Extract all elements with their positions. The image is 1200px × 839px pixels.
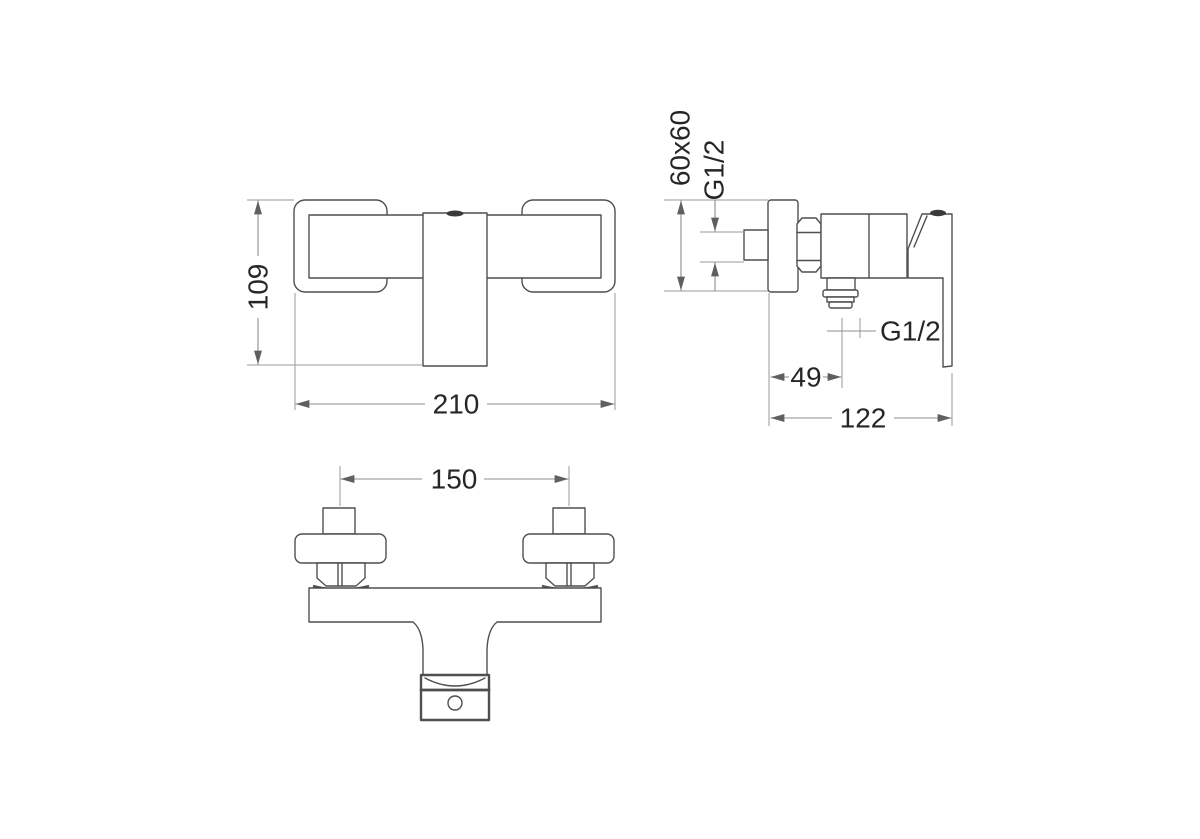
side-hex-nut — [797, 218, 821, 272]
side-wall-plate — [768, 200, 798, 292]
dim-hole-spacing: 150 — [340, 464, 569, 507]
dim-text-122: 122 — [840, 403, 887, 434]
bottom-view — [295, 508, 614, 720]
dim-inlet-thread: G1/2 — [699, 140, 745, 291]
dim-text-109: 109 — [243, 264, 274, 311]
bottom-hex-nut-left — [317, 563, 365, 586]
bottom-inlet-square-left — [323, 508, 355, 534]
bottom-spout-box — [421, 675, 489, 720]
side-inlet-pipe — [744, 230, 768, 260]
bottom-inlet-square-right — [553, 508, 585, 534]
side-lever-screw — [930, 210, 946, 216]
side-body — [821, 214, 907, 278]
side-outlet-thread-top — [827, 297, 854, 302]
bottom-escutcheon-right — [523, 534, 614, 563]
dim-text-60x60: 60x60 — [665, 110, 696, 186]
front-view — [294, 200, 615, 366]
technical-drawing: 109 210 60x60 G1/2 G1/2 — [0, 0, 1200, 839]
technical-drawing-page: 109 210 60x60 G1/2 G1/2 — [0, 0, 1200, 839]
dim-outlet-thread: G1/2 — [827, 316, 941, 389]
dim-text-150: 150 — [431, 464, 478, 495]
bottom-hex-nut-right — [546, 563, 594, 586]
front-handle — [423, 213, 487, 366]
dim-text-210: 210 — [433, 389, 480, 420]
side-outlet-block — [827, 278, 855, 290]
dim-outlet-offset: 49 — [771, 362, 842, 393]
dim-text-g12-outlet: G1/2 — [880, 316, 941, 347]
bottom-escutcheon-left — [295, 534, 386, 563]
side-outlet-flange — [823, 290, 858, 297]
dim-text-g12-inlet: G1/2 — [699, 140, 730, 201]
dim-text-49: 49 — [790, 362, 821, 393]
side-outlet-thread-tip — [829, 302, 852, 308]
front-handle-screw — [447, 211, 464, 217]
bottom-body — [309, 588, 601, 675]
